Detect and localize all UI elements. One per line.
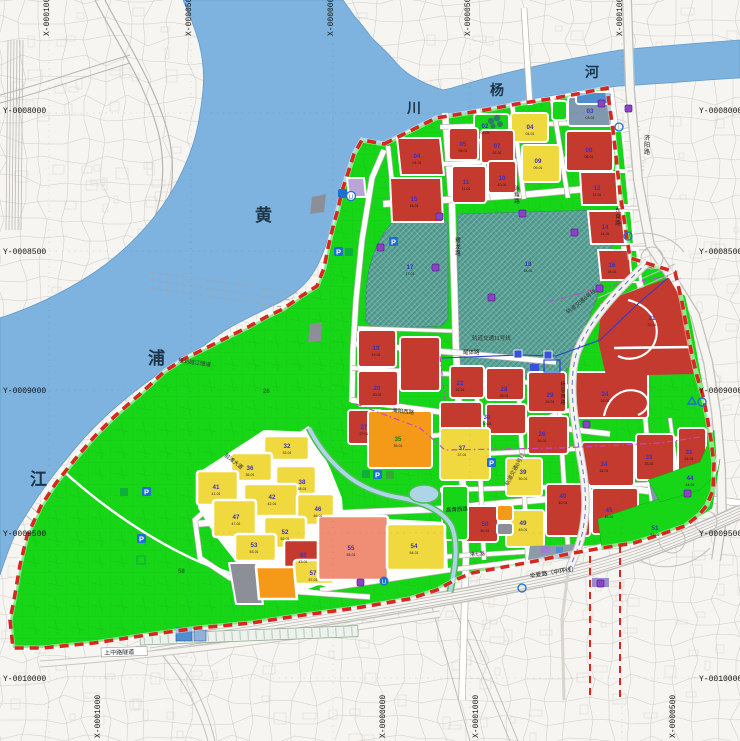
svg-text:17: 17 — [407, 264, 414, 271]
svg-text:20-01: 20-01 — [373, 393, 382, 397]
svg-text:21-01: 21-01 — [648, 323, 657, 327]
svg-text:轨道交通11号线: 轨道交通11号线 — [472, 334, 511, 342]
svg-text:52-01: 52-01 — [281, 537, 290, 541]
svg-text:47: 47 — [233, 514, 240, 521]
svg-text:53-01: 53-01 — [250, 550, 259, 554]
svg-text:31: 31 — [686, 449, 693, 456]
svg-text:52: 52 — [282, 529, 289, 536]
svg-text:育: 育 — [615, 213, 621, 221]
svg-text:36-01: 36-01 — [246, 473, 255, 477]
svg-text:Y-0008000: Y-0008000 — [3, 107, 46, 116]
svg-text:26: 26 — [539, 431, 546, 438]
svg-text:57-01: 57-01 — [309, 578, 318, 582]
svg-text:U: U — [349, 195, 353, 201]
svg-text:43: 43 — [300, 552, 307, 559]
svg-text:港七路: 港七路 — [470, 550, 485, 558]
svg-text:路: 路 — [455, 249, 461, 257]
svg-text:路: 路 — [615, 219, 621, 227]
svg-text:龙: 龙 — [455, 243, 461, 251]
svg-text:27-01: 27-01 — [360, 432, 369, 436]
svg-text:15: 15 — [411, 196, 418, 203]
svg-text:Y-0008500: Y-0008500 — [3, 248, 46, 257]
svg-text:耀体路: 耀体路 — [463, 348, 480, 356]
svg-text:08-01: 08-01 — [585, 155, 594, 159]
svg-text:X-0000000: X-0000000 — [327, 0, 336, 36]
svg-text:51: 51 — [652, 525, 659, 532]
svg-text:22: 22 — [457, 380, 464, 387]
svg-text:24-01: 24-01 — [601, 399, 610, 403]
svg-text:阳: 阳 — [644, 141, 650, 149]
svg-text:X-0001000: X-0001000 — [472, 695, 481, 738]
svg-text:29: 29 — [547, 392, 554, 399]
svg-text:Y-0008000: Y-0008000 — [699, 107, 740, 116]
svg-text:11-01: 11-01 — [462, 187, 471, 191]
svg-text:Y-0009500: Y-0009500 — [699, 530, 740, 539]
svg-text:57: 57 — [310, 570, 317, 577]
svg-text:Y-0010000: Y-0010000 — [699, 675, 740, 684]
svg-text:45: 45 — [606, 507, 613, 514]
svg-text:58: 58 — [178, 569, 185, 575]
svg-text:46-01: 46-01 — [314, 514, 323, 518]
svg-text:川: 川 — [406, 100, 421, 116]
svg-text:杨: 杨 — [560, 381, 565, 388]
svg-text:46: 46 — [315, 506, 322, 513]
svg-text:18: 18 — [525, 261, 532, 268]
svg-text:41-01: 41-01 — [212, 492, 221, 496]
svg-text:10: 10 — [499, 175, 506, 182]
svg-text:东: 东 — [615, 206, 621, 214]
svg-text:杨: 杨 — [490, 82, 504, 98]
svg-text:30: 30 — [484, 414, 491, 421]
svg-text:34-01: 34-01 — [600, 469, 609, 473]
svg-text:P: P — [489, 458, 494, 467]
svg-text:Y-0009000: Y-0009000 — [3, 387, 46, 396]
svg-text:路: 路 — [514, 197, 520, 205]
svg-text:50: 50 — [482, 521, 489, 528]
svg-text:04: 04 — [527, 124, 534, 131]
svg-text:38-01: 38-01 — [298, 487, 307, 491]
svg-text:27: 27 — [361, 424, 368, 431]
svg-text:P: P — [375, 470, 380, 479]
svg-text:40: 40 — [560, 493, 567, 500]
svg-text:35: 35 — [395, 436, 402, 443]
svg-text:29-01: 29-01 — [546, 400, 555, 404]
svg-text:20: 20 — [374, 385, 381, 392]
svg-text:09: 09 — [535, 158, 542, 165]
svg-text:18-01: 18-01 — [524, 269, 533, 273]
svg-text:28: 28 — [501, 386, 508, 393]
svg-text:U: U — [382, 580, 386, 586]
svg-text:49-01: 49-01 — [519, 528, 528, 532]
svg-text:Y-0010000: Y-0010000 — [3, 675, 46, 684]
svg-text:51-01: 51-01 — [651, 533, 660, 537]
svg-text:Y-0008500: Y-0008500 — [699, 248, 740, 257]
svg-text:41: 41 — [213, 484, 220, 491]
svg-text:耀: 耀 — [455, 236, 461, 244]
svg-text:49: 49 — [520, 520, 527, 527]
svg-text:04-01: 04-01 — [526, 132, 535, 136]
svg-text:P: P — [139, 534, 144, 543]
svg-text:07-01: 07-01 — [493, 151, 502, 155]
svg-text:X-0001000: X-0001000 — [94, 695, 103, 738]
svg-text:54-01: 54-01 — [410, 551, 419, 555]
svg-text:11: 11 — [463, 179, 470, 186]
svg-text:X-0000000: X-0000000 — [379, 695, 388, 738]
svg-text:14: 14 — [602, 224, 609, 231]
svg-text:10-01: 10-01 — [498, 183, 507, 187]
svg-text:53: 53 — [251, 542, 258, 549]
svg-text:54: 54 — [411, 543, 418, 550]
svg-text:济: 济 — [644, 134, 650, 142]
svg-text:28-01: 28-01 — [500, 394, 509, 398]
svg-text:02: 02 — [482, 123, 489, 130]
svg-text:19: 19 — [373, 345, 380, 352]
svg-text:35-01: 35-01 — [394, 444, 403, 448]
svg-text:33-01: 33-01 — [645, 462, 654, 466]
svg-text:04-01: 04-01 — [413, 161, 422, 165]
svg-text:45-01: 45-01 — [605, 515, 614, 519]
svg-text:浦: 浦 — [148, 348, 165, 368]
svg-text:39-01: 39-01 — [519, 477, 528, 481]
svg-text:50-01: 50-01 — [481, 529, 490, 533]
svg-text:24: 24 — [602, 391, 609, 398]
svg-text:14-01: 14-01 — [601, 232, 610, 236]
svg-text:P: P — [336, 247, 341, 256]
svg-text:42-01: 42-01 — [268, 502, 277, 506]
svg-text:42: 42 — [269, 494, 276, 501]
svg-text:12: 12 — [594, 185, 601, 192]
svg-text:Y-0009500: Y-0009500 — [3, 530, 46, 539]
svg-text:26: 26 — [263, 389, 270, 395]
svg-text:16: 16 — [609, 262, 616, 269]
svg-text:37-01: 37-01 — [458, 453, 467, 457]
svg-text:04: 04 — [414, 153, 421, 160]
svg-text:47-01: 47-01 — [232, 522, 241, 526]
svg-text:22-01: 22-01 — [456, 388, 465, 392]
svg-text:31-01: 31-01 — [685, 457, 694, 461]
svg-text:12-01: 12-01 — [593, 193, 602, 197]
svg-text:泳: 泳 — [514, 184, 520, 192]
svg-text:26-01: 26-01 — [538, 439, 547, 443]
svg-text:02-01: 02-01 — [481, 131, 490, 135]
svg-text:09-01: 09-01 — [534, 166, 543, 170]
svg-text:16-01: 16-01 — [608, 270, 617, 274]
svg-text:路: 路 — [644, 148, 650, 156]
svg-text:32-01: 32-01 — [283, 451, 292, 455]
svg-text:河: 河 — [585, 64, 599, 80]
svg-text:X-0001000: X-0001000 — [43, 0, 52, 36]
svg-text:X-0000500: X-0000500 — [185, 0, 194, 36]
svg-text:07: 07 — [494, 143, 501, 150]
svg-text:44-01: 44-01 — [686, 483, 695, 487]
svg-text:路: 路 — [560, 399, 565, 406]
svg-text:36: 36 — [247, 465, 254, 472]
svg-text:X-0000500: X-0000500 — [464, 0, 473, 36]
svg-text:X-0001000: X-0001000 — [616, 0, 625, 36]
svg-text:39: 39 — [520, 469, 527, 476]
svg-text:03: 03 — [587, 108, 594, 115]
svg-text:21: 21 — [649, 315, 656, 322]
svg-text:03-01: 03-01 — [586, 116, 595, 120]
svg-text:19-01: 19-01 — [372, 353, 381, 357]
svg-text:江: 江 — [30, 470, 47, 489]
svg-text:43-01: 43-01 — [299, 560, 308, 564]
svg-text:15-01: 15-01 — [410, 204, 419, 208]
svg-text:17-01: 17-01 — [406, 272, 415, 276]
svg-text:P: P — [144, 487, 149, 496]
svg-text:37: 37 — [459, 445, 466, 452]
svg-text:55: 55 — [348, 545, 355, 552]
svg-text:30-01: 30-01 — [483, 422, 492, 426]
svg-text:55-01: 55-01 — [347, 553, 356, 557]
svg-text:05: 05 — [460, 141, 467, 148]
svg-text:44: 44 — [687, 475, 694, 482]
svg-text:耀: 耀 — [514, 191, 520, 199]
svg-text:08: 08 — [586, 147, 593, 154]
svg-text:32: 32 — [284, 443, 291, 450]
svg-text:05-01: 05-01 — [459, 149, 468, 153]
svg-text:40-01: 40-01 — [559, 501, 568, 505]
svg-text:黄: 黄 — [255, 205, 272, 225]
svg-text:38: 38 — [299, 479, 306, 486]
svg-text:X-0000500: X-0000500 — [669, 695, 678, 738]
svg-text:33: 33 — [646, 454, 653, 461]
svg-text:Y-0009000: Y-0009000 — [699, 387, 740, 396]
svg-text:P: P — [391, 237, 396, 246]
svg-text:34: 34 — [601, 461, 608, 468]
